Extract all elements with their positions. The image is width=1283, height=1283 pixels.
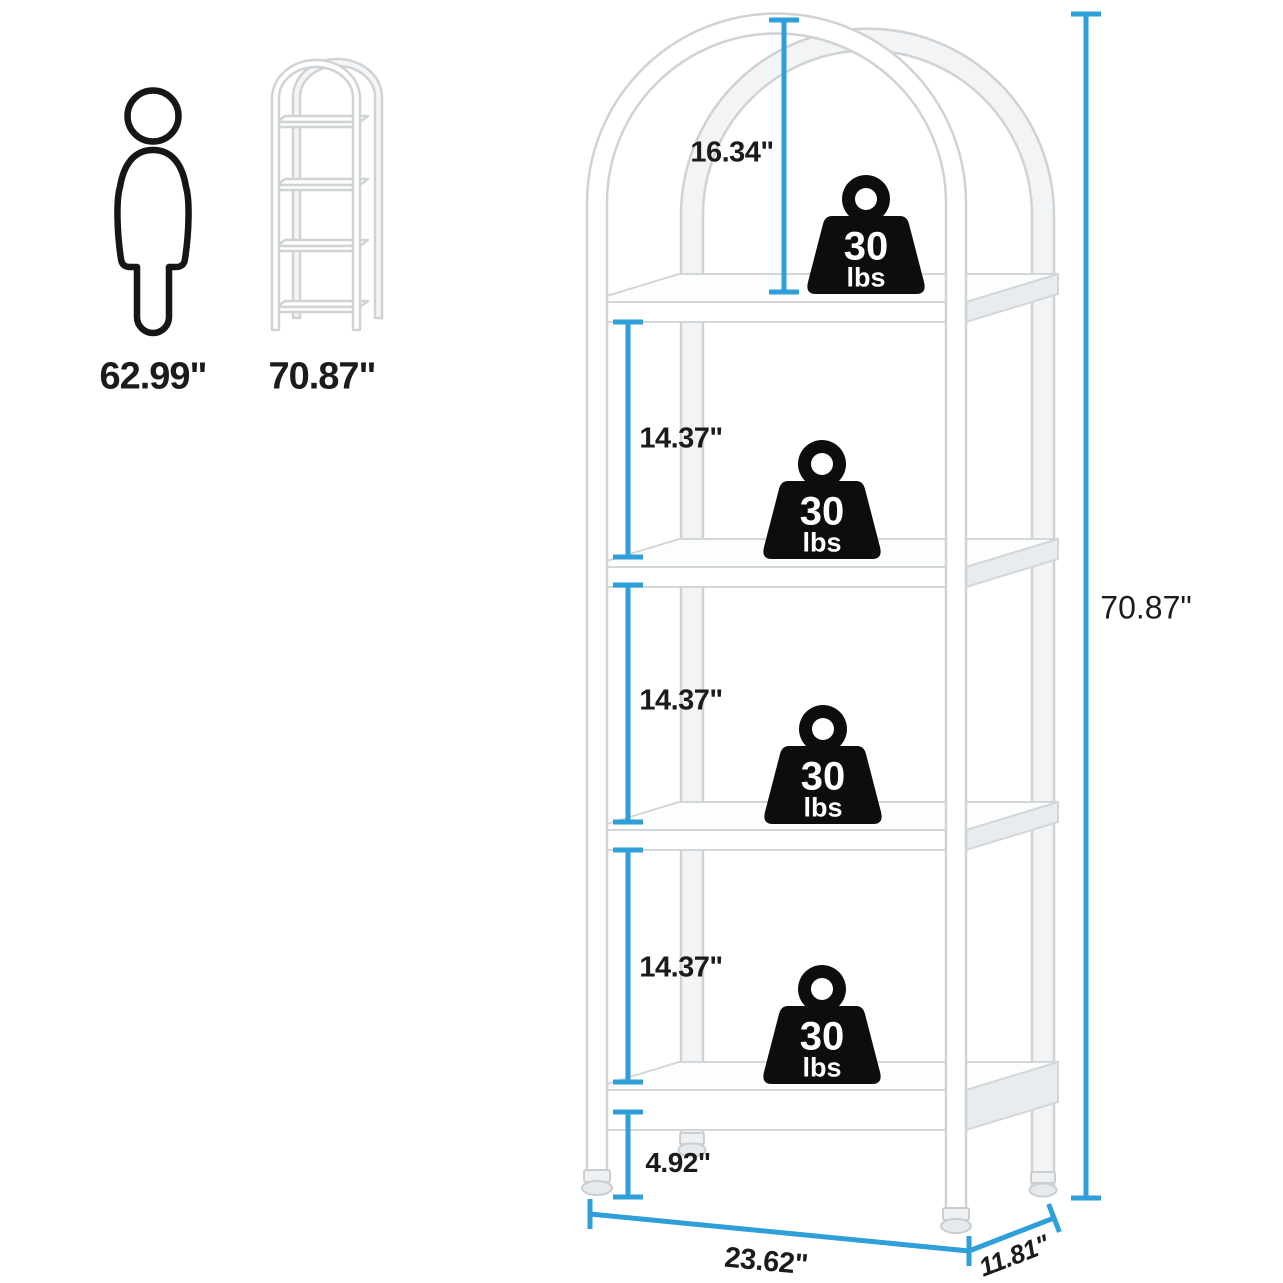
weight-unit-tier-1: lbs <box>846 263 885 294</box>
shelf-gap-1-label: 14.37" <box>639 423 722 456</box>
overall-height-label: 70.87" <box>1100 590 1191 627</box>
weight-unit-tier-2: lbs <box>802 528 841 559</box>
dimension-line-overall-height <box>1071 14 1101 1198</box>
foot-front-left <box>582 1170 612 1195</box>
shelf-gap-2-label: 14.37" <box>639 685 722 718</box>
person-icon <box>117 91 188 334</box>
bookshelf-thumbnail-icon <box>272 59 382 330</box>
bottom-clearance-label: 4.92" <box>645 1147 710 1179</box>
product-dimension-diagram: 62.99" 70.87" 16.34" 14.37" 14.37" 14.37… <box>0 0 1283 1283</box>
weight-unit-tier-3: lbs <box>803 793 842 824</box>
diagram-artwork <box>0 0 1283 1283</box>
arch-to-first-shelf-label: 16.34" <box>690 137 773 170</box>
person-height-label: 62.99" <box>99 356 206 399</box>
foot-front-right <box>941 1208 971 1233</box>
shelf-gap-3-label: 14.37" <box>639 952 722 985</box>
thumbnail-height-label: 70.87" <box>268 356 375 399</box>
weight-unit-tier-4: lbs <box>802 1053 841 1084</box>
